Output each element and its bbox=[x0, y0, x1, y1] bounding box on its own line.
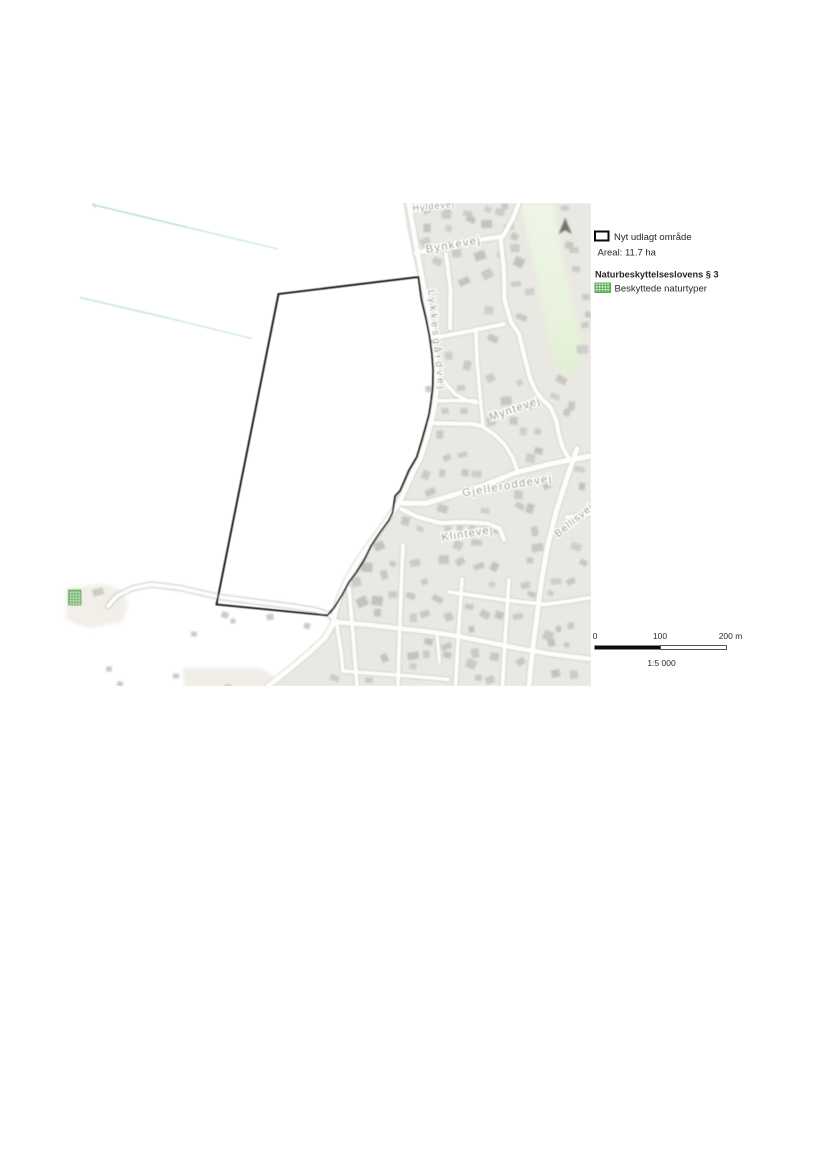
svg-text:100: 100 bbox=[653, 631, 667, 641]
svg-text:Areal: 11.7 ha: Areal: 11.7 ha bbox=[598, 248, 657, 259]
svg-text:1:5 000: 1:5 000 bbox=[647, 658, 676, 668]
svg-text:0: 0 bbox=[593, 631, 598, 641]
svg-text:Naturbeskyttelseslovens § 3: Naturbeskyttelseslovens § 3 bbox=[595, 270, 719, 280]
svg-text:Nyt udlagt område: Nyt udlagt område bbox=[614, 232, 692, 243]
svg-text:Beskyttede naturtyper: Beskyttede naturtyper bbox=[615, 284, 707, 295]
svg-text:200 m: 200 m bbox=[719, 631, 743, 641]
